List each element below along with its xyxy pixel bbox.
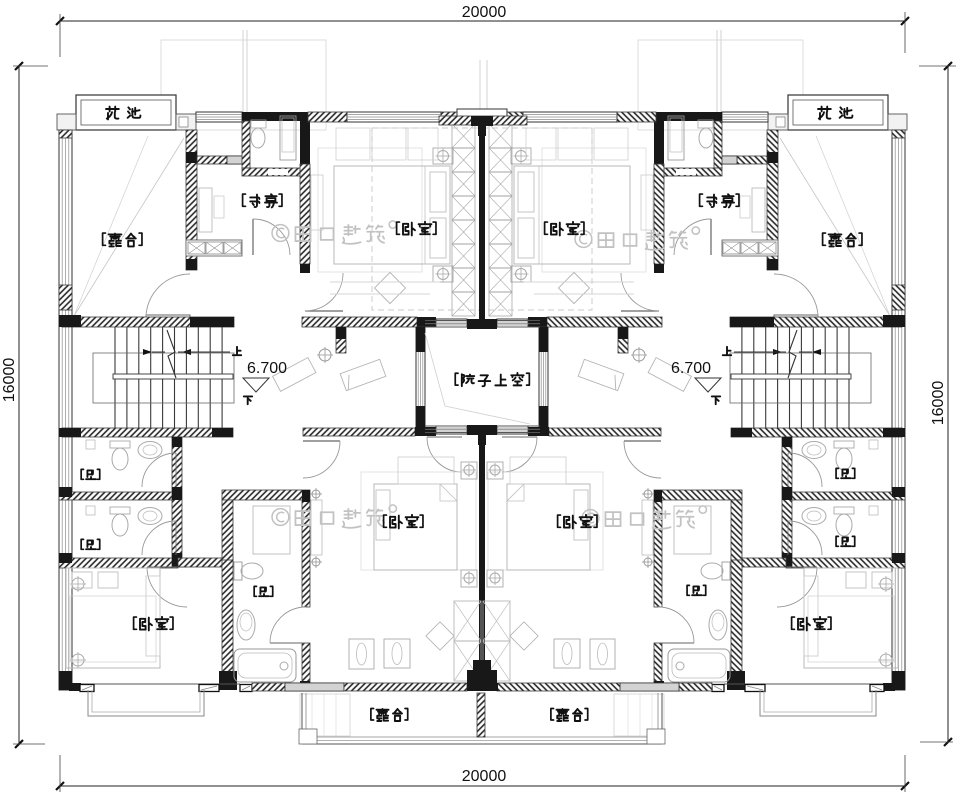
svg-text:6.700: 6.700: [247, 360, 287, 377]
svg-text:20000: 20000: [462, 4, 507, 21]
svg-text:6.700: 6.700: [671, 360, 711, 377]
svg-text:16000: 16000: [1, 358, 18, 403]
svg-text:16000: 16000: [930, 381, 947, 426]
svg-text:20000: 20000: [462, 768, 507, 785]
